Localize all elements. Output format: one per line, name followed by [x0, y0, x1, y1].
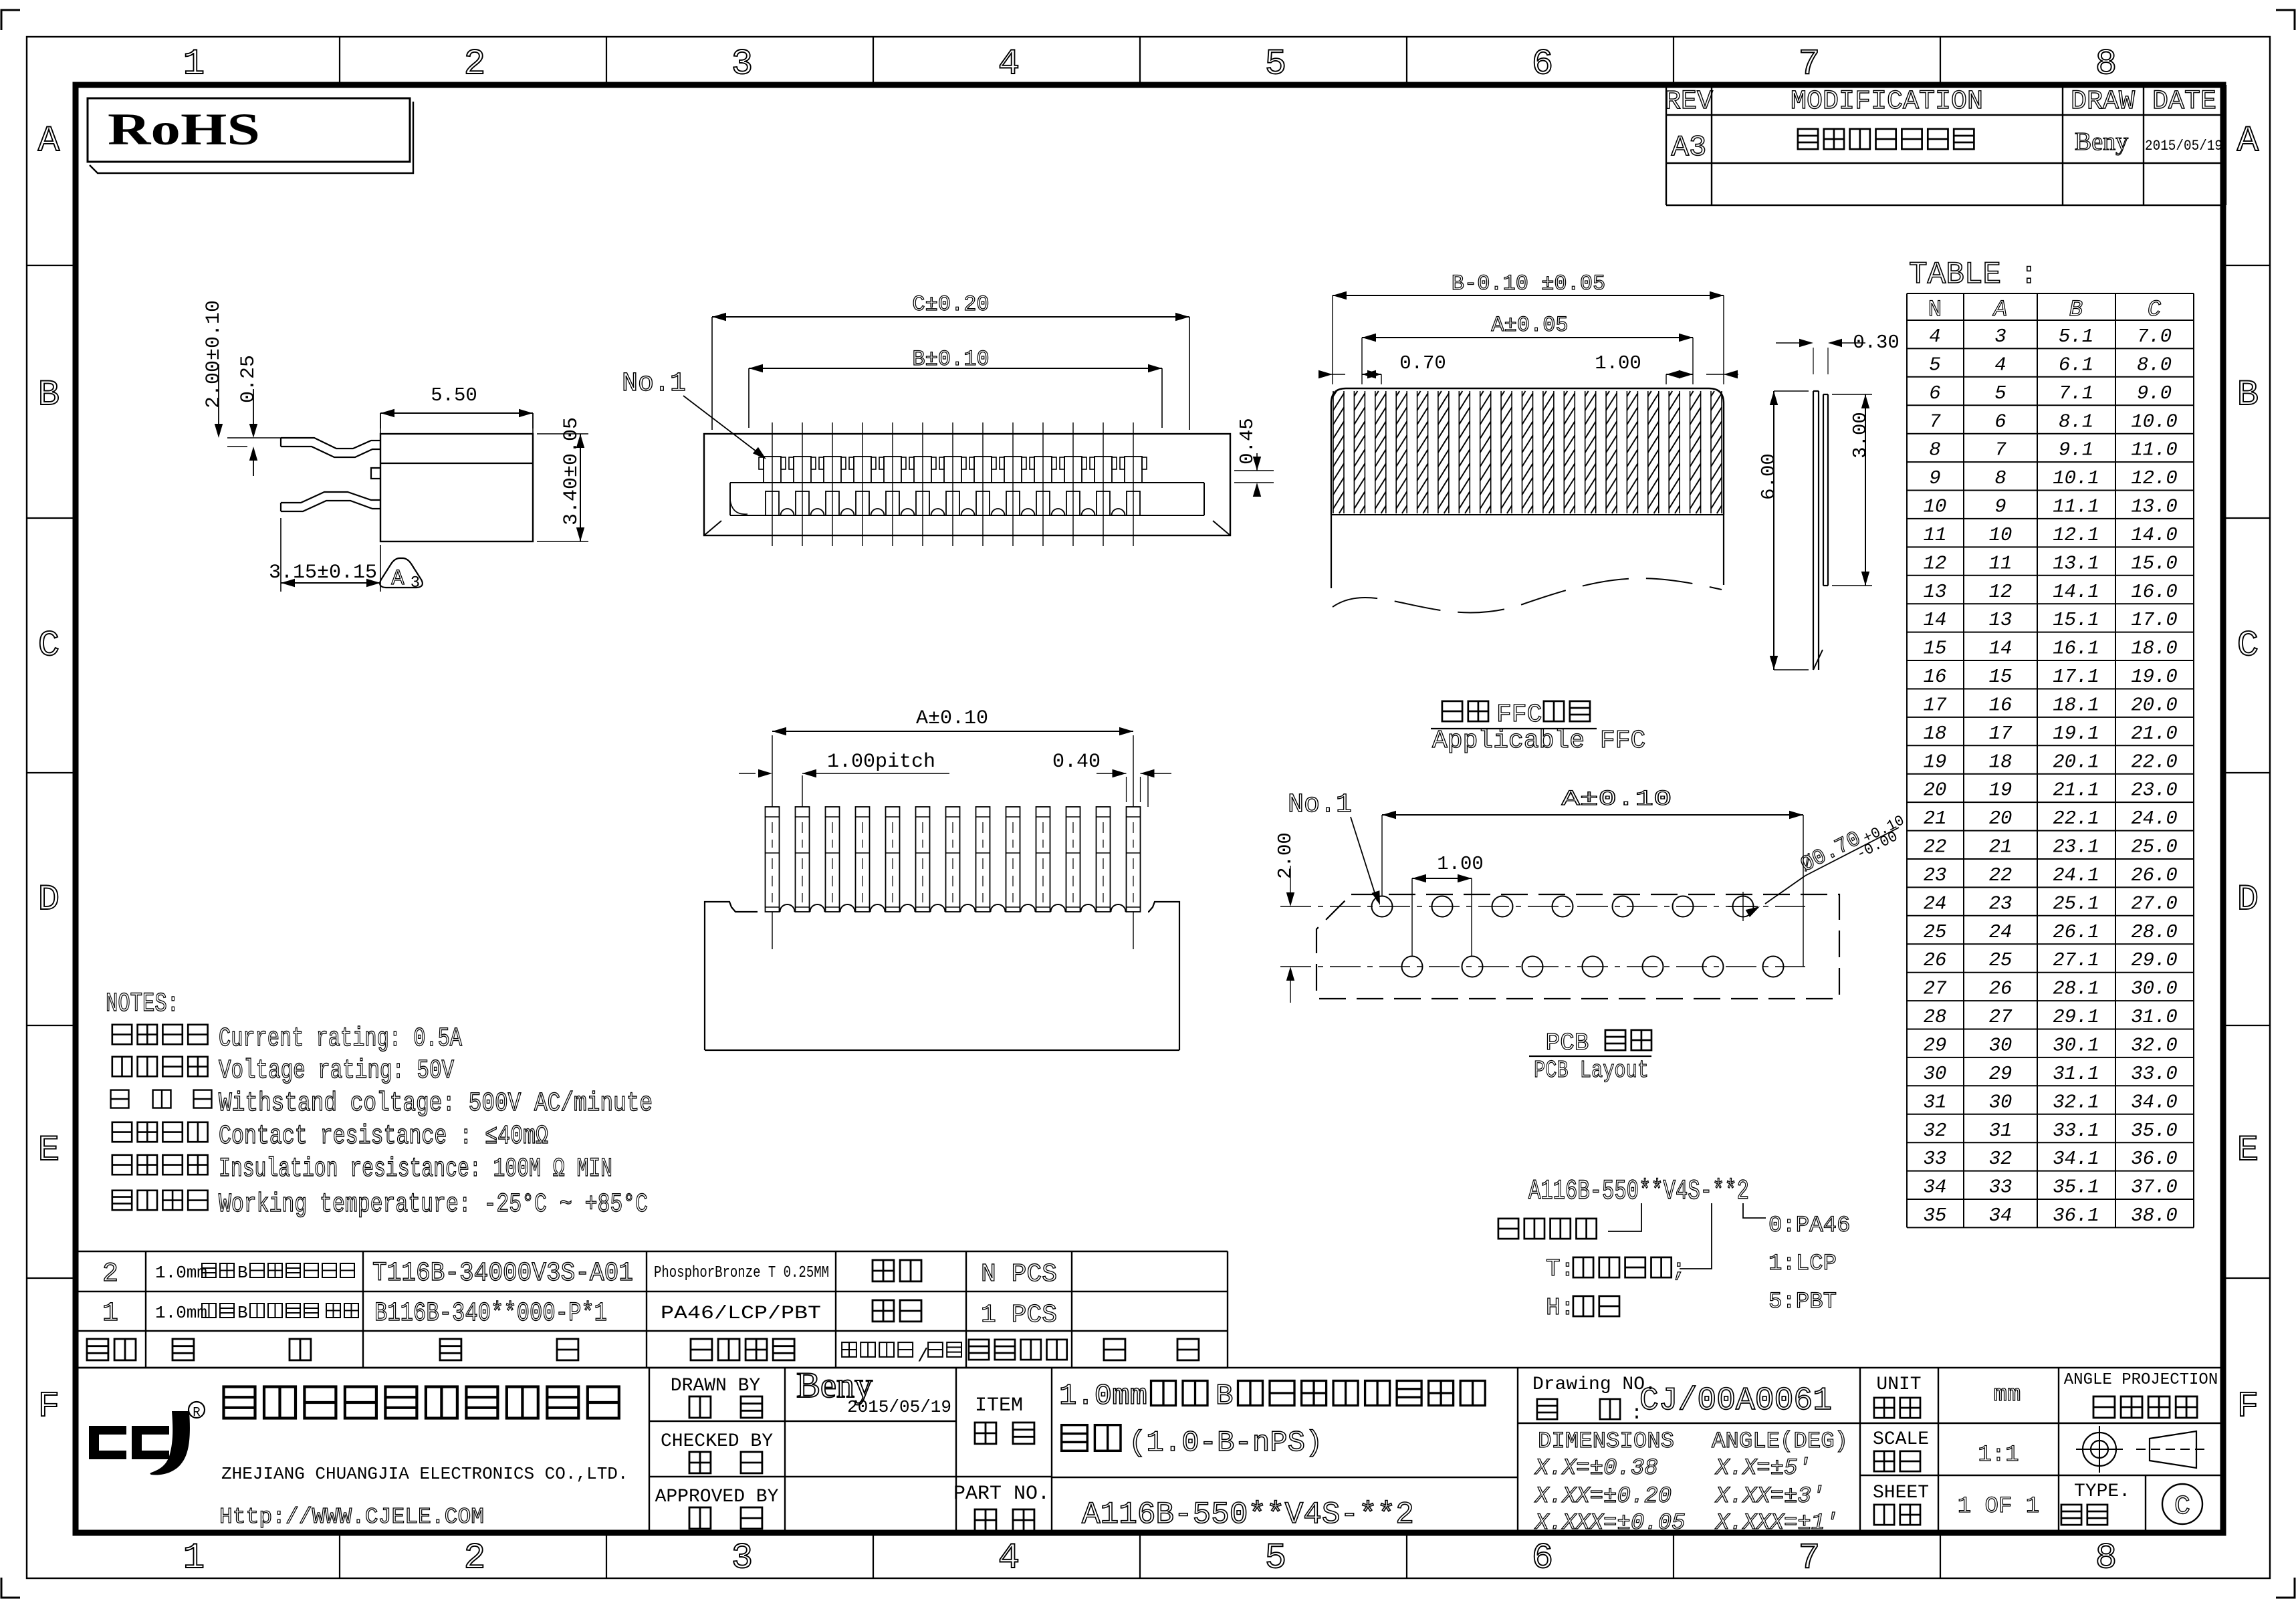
svg-text:1.00: 1.00 — [1437, 853, 1484, 875]
svg-text:5:PBT: 5:PBT — [1768, 1289, 1837, 1315]
svg-text:PA46/LCP/PBT: PA46/LCP/PBT — [661, 1304, 821, 1324]
svg-text:24: 24 — [1924, 892, 1947, 914]
svg-text:MODIFICATION: MODIFICATION — [1791, 87, 1983, 117]
svg-text:33.1: 33.1 — [2053, 1120, 2099, 1142]
svg-text:B: B — [237, 1263, 248, 1283]
svg-text:9.1: 9.1 — [2059, 439, 2093, 461]
svg-text:16.0: 16.0 — [2131, 581, 2178, 603]
svg-text:PART NO.: PART NO. — [953, 1483, 1050, 1505]
svg-text:4: 4 — [998, 1538, 1020, 1579]
svg-text:3: 3 — [1994, 326, 2006, 348]
svg-text:A±0.10: A±0.10 — [1562, 787, 1672, 812]
svg-text:29: 29 — [1989, 1063, 2013, 1085]
svg-text:1: 1 — [183, 1538, 205, 1579]
svg-text:Current rating: 0.5A: Current rating: 0.5A — [219, 1024, 462, 1054]
svg-text:F: F — [38, 1386, 60, 1427]
svg-text:X.XX=±3': X.XX=±3' — [1714, 1484, 1825, 1509]
svg-text:DRAW: DRAW — [2071, 87, 2135, 117]
svg-text:7.0: 7.0 — [2137, 326, 2172, 348]
svg-text:ANGLE(DEG): ANGLE(DEG) — [1712, 1429, 1848, 1455]
svg-text:A±0.10: A±0.10 — [916, 707, 988, 730]
svg-text:2.00±0.10: 2.00±0.10 — [203, 300, 225, 408]
svg-text:27.0: 27.0 — [2131, 892, 2178, 914]
svg-text:27: 27 — [1924, 978, 1947, 1000]
svg-text:22: 22 — [1924, 836, 1947, 858]
svg-text:X.XX=±0.20: X.XX=±0.20 — [1534, 1484, 1672, 1509]
svg-text:28: 28 — [1924, 1006, 1947, 1028]
svg-text:C: C — [38, 626, 60, 666]
svg-text:13.0: 13.0 — [2131, 496, 2178, 518]
svg-text:24: 24 — [1989, 921, 2013, 943]
svg-text:18: 18 — [1989, 751, 2013, 773]
svg-text:Ø0.70: Ø0.70 — [1797, 826, 1865, 878]
svg-text:4: 4 — [998, 44, 1020, 85]
svg-text:C: C — [2148, 297, 2162, 323]
svg-text:12: 12 — [1924, 552, 1947, 574]
svg-text:2.00: 2.00 — [1274, 832, 1296, 879]
svg-text:21: 21 — [1989, 836, 2013, 858]
svg-text:14: 14 — [1924, 609, 1947, 631]
svg-text:33: 33 — [1989, 1177, 2013, 1199]
svg-text:8.0: 8.0 — [2137, 354, 2172, 376]
svg-text:17: 17 — [1924, 695, 1947, 717]
svg-text:A±0.05: A±0.05 — [1491, 313, 1568, 338]
svg-text:7: 7 — [1929, 410, 1941, 432]
svg-text:Working temperature: -25°C ~ +: Working temperature: -25°C ~ +85°C — [219, 1190, 648, 1220]
svg-text:31: 31 — [1989, 1120, 2013, 1142]
svg-text:34.1: 34.1 — [2053, 1148, 2099, 1170]
svg-text:3.15±0.15: 3.15±0.15 — [269, 562, 377, 584]
svg-text:4: 4 — [1994, 354, 2006, 376]
svg-text:25.1: 25.1 — [2053, 892, 2099, 914]
svg-text:5: 5 — [1929, 354, 1940, 376]
svg-text:REV: REV — [1665, 87, 1713, 117]
svg-text:1.0mm: 1.0mm — [155, 1303, 207, 1323]
svg-text:DATE: DATE — [2152, 87, 2216, 117]
svg-text:E: E — [2237, 1130, 2259, 1171]
svg-text:A: A — [391, 566, 405, 591]
svg-text:12: 12 — [1989, 581, 2013, 603]
svg-text:32: 32 — [1989, 1148, 2013, 1170]
svg-text:30: 30 — [1989, 1035, 2013, 1057]
svg-text:35.1: 35.1 — [2053, 1177, 2099, 1199]
svg-text:9.0: 9.0 — [2137, 382, 2172, 404]
svg-text:37.0: 37.0 — [2131, 1177, 2178, 1199]
svg-text:C: C — [2174, 1492, 2190, 1522]
svg-text:mm: mm — [1994, 1382, 2021, 1408]
svg-text:26.1: 26.1 — [2053, 921, 2099, 943]
svg-text:33: 33 — [1924, 1148, 1947, 1170]
svg-text:10: 10 — [1924, 496, 1947, 518]
svg-text:15: 15 — [1989, 666, 2013, 688]
svg-text:(1.0-B-nPS): (1.0-B-nPS) — [1129, 1427, 1323, 1460]
svg-text:30.1: 30.1 — [2053, 1035, 2099, 1057]
svg-text:28.1: 28.1 — [2053, 978, 2099, 1000]
svg-text:18.0: 18.0 — [2131, 638, 2178, 660]
svg-text:34: 34 — [1924, 1177, 1947, 1199]
svg-text:6: 6 — [1994, 410, 2006, 432]
svg-text:8: 8 — [1994, 467, 2006, 489]
svg-text:12.1: 12.1 — [2053, 524, 2099, 546]
svg-text:34: 34 — [1989, 1205, 2013, 1227]
svg-text:16.1: 16.1 — [2053, 638, 2099, 660]
svg-text:1: 1 — [183, 44, 205, 85]
svg-text:CHECKED BY: CHECKED BY — [661, 1431, 773, 1452]
svg-text:1:1: 1:1 — [1978, 1443, 2019, 1468]
svg-text:N PCS: N PCS — [981, 1260, 1057, 1289]
svg-text:32.0: 32.0 — [2131, 1035, 2178, 1057]
svg-text:4: 4 — [1929, 326, 1940, 348]
svg-text:15: 15 — [1924, 638, 1947, 660]
svg-text:7: 7 — [1799, 1538, 1820, 1579]
svg-text:2: 2 — [464, 44, 485, 85]
svg-text:3: 3 — [411, 574, 420, 592]
svg-text:25: 25 — [1924, 921, 1947, 943]
svg-text:20.1: 20.1 — [2053, 751, 2099, 773]
svg-text:3: 3 — [731, 44, 753, 85]
svg-text:UNIT: UNIT — [1876, 1374, 1921, 1395]
svg-text:10.0: 10.0 — [2131, 410, 2178, 432]
svg-text:16: 16 — [1924, 666, 1947, 688]
svg-text:8.1: 8.1 — [2059, 410, 2093, 432]
svg-text:NOTES:: NOTES: — [106, 989, 179, 1019]
svg-text:1 OF 1: 1 OF 1 — [1958, 1494, 2039, 1519]
svg-text:1: 1 — [102, 1299, 118, 1329]
svg-text:21.1: 21.1 — [2053, 779, 2099, 801]
svg-text:FFC: FFC — [1496, 701, 1542, 729]
svg-text:N: N — [1928, 297, 1942, 323]
svg-text:30: 30 — [1924, 1063, 1947, 1085]
svg-text:Voltage rating: 50V: Voltage rating: 50V — [219, 1056, 454, 1086]
svg-text:29: 29 — [1924, 1035, 1947, 1057]
svg-text:16: 16 — [1989, 695, 2013, 717]
svg-text:Drawing NO.: Drawing NO. — [1532, 1374, 1656, 1395]
svg-text:29.0: 29.0 — [2131, 949, 2178, 971]
svg-text:R: R — [193, 1405, 200, 1420]
svg-text:A3: A3 — [1672, 131, 1707, 164]
svg-text:8: 8 — [2095, 44, 2117, 85]
svg-text:5: 5 — [1265, 44, 1286, 85]
svg-text:X.XXX=±1': X.XXX=±1' — [1714, 1511, 1839, 1536]
svg-text:6.00: 6.00 — [1758, 453, 1780, 500]
svg-text:B: B — [38, 375, 60, 416]
svg-text:19: 19 — [1989, 779, 2013, 801]
svg-text:APPROVED BY: APPROVED BY — [655, 1487, 779, 1507]
svg-text:TYPE.: TYPE. — [2074, 1481, 2130, 1502]
svg-text:31.0: 31.0 — [2131, 1006, 2178, 1028]
svg-text:19: 19 — [1924, 751, 1947, 773]
svg-text:26: 26 — [1924, 949, 1947, 971]
svg-text:D: D — [2237, 880, 2259, 920]
svg-text:C±0.20: C±0.20 — [912, 292, 989, 317]
svg-text:18.1: 18.1 — [2053, 695, 2099, 717]
svg-text:17.0: 17.0 — [2131, 609, 2178, 631]
svg-text:20.0: 20.0 — [2131, 695, 2178, 717]
svg-text:0:PA46: 0:PA46 — [1768, 1213, 1850, 1239]
svg-text:3: 3 — [731, 1538, 753, 1579]
svg-text:A: A — [1992, 297, 2007, 323]
svg-text:21: 21 — [1924, 808, 1947, 830]
svg-text:B: B — [2237, 375, 2259, 416]
svg-text:17.1: 17.1 — [2053, 666, 2099, 688]
svg-text:34.0: 34.0 — [2131, 1091, 2178, 1113]
svg-text:X.X=±5': X.X=±5' — [1714, 1456, 1811, 1481]
svg-text:6: 6 — [1532, 44, 1553, 85]
svg-text:8: 8 — [2095, 1538, 2117, 1579]
svg-text:11: 11 — [1924, 524, 1947, 546]
svg-text:2: 2 — [102, 1259, 118, 1289]
svg-text:38.0: 38.0 — [2131, 1205, 2178, 1227]
svg-text:36.1: 36.1 — [2053, 1205, 2099, 1227]
svg-text:Insulation resistance: 100M Ω: Insulation resistance: 100M Ω MIN — [219, 1154, 612, 1185]
svg-text:32.1: 32.1 — [2053, 1091, 2099, 1113]
svg-text:X.XXX=±0.05: X.XXX=±0.05 — [1534, 1511, 1685, 1536]
svg-text:SHEET: SHEET — [1873, 1483, 1929, 1503]
svg-text:D: D — [38, 880, 60, 920]
svg-text:No.1: No.1 — [1288, 790, 1352, 820]
svg-text:E: E — [38, 1130, 60, 1171]
svg-text:5: 5 — [1994, 382, 2006, 404]
svg-text:26: 26 — [1989, 978, 2013, 1000]
svg-text:23: 23 — [1989, 892, 2013, 914]
svg-text:Applicable FFC: Applicable FFC — [1432, 727, 1645, 755]
svg-text:11.1: 11.1 — [2053, 496, 2099, 518]
svg-text:PhosphorBronze T 0.25MM: PhosphorBronze T 0.25MM — [654, 1264, 829, 1282]
svg-text:0.40: 0.40 — [1052, 751, 1101, 773]
svg-text:6: 6 — [1532, 1538, 1553, 1579]
svg-text:PCB: PCB — [1546, 1029, 1589, 1057]
svg-text:A116B-550**V4S-**2: A116B-550**V4S-**2 — [1082, 1497, 1414, 1532]
svg-text:A116B-550**V4S-**2: A116B-550**V4S-**2 — [1528, 1175, 1749, 1207]
svg-text:ANGLE PROJECTION: ANGLE PROJECTION — [2064, 1371, 2218, 1389]
svg-text:23.0: 23.0 — [2131, 779, 2178, 801]
svg-text:8: 8 — [1929, 439, 1940, 461]
svg-text:ZHEJIANG CHUANGJIA ELECTRONICS: ZHEJIANG CHUANGJIA ELECTRONICS CO.,LTD. — [221, 1464, 628, 1484]
svg-text:B: B — [2069, 297, 2083, 323]
svg-text:Withstand coltage: 500V AC/min: Withstand coltage: 500V AC/minute — [219, 1089, 653, 1119]
svg-text:14: 14 — [1989, 638, 2013, 660]
svg-text:B116B-340**000-P*1: B116B-340**000-P*1 — [374, 1299, 607, 1329]
svg-text:25.0: 25.0 — [2131, 836, 2178, 858]
svg-text:13: 13 — [1989, 609, 2013, 631]
svg-text:F: F — [2237, 1386, 2259, 1427]
svg-text:26.0: 26.0 — [2131, 864, 2178, 886]
svg-text:B: B — [1216, 1380, 1233, 1413]
svg-text:TABLE :: TABLE : — [1909, 257, 2038, 292]
svg-text:2015/05/19: 2015/05/19 — [847, 1397, 951, 1417]
svg-text:Contact resistance : ≤40mΩ: Contact resistance : ≤40mΩ — [219, 1122, 548, 1152]
svg-text:15.1: 15.1 — [2053, 609, 2099, 631]
svg-text:1.00: 1.00 — [1595, 352, 1641, 374]
svg-text:17: 17 — [1989, 723, 2013, 745]
svg-text:35.0: 35.0 — [2131, 1120, 2178, 1142]
svg-text:22.0: 22.0 — [2131, 751, 2178, 773]
svg-text:CJ/00A0061: CJ/00A0061 — [1639, 1383, 1832, 1419]
svg-text:7: 7 — [1799, 44, 1820, 85]
svg-text:23.1: 23.1 — [2053, 836, 2099, 858]
svg-text:23: 23 — [1924, 864, 1947, 886]
svg-text:27.1: 27.1 — [2053, 949, 2099, 971]
svg-text:2: 2 — [464, 1538, 485, 1579]
svg-text:PCB Layout: PCB Layout — [1534, 1057, 1649, 1084]
svg-text:1 PCS: 1 PCS — [981, 1301, 1057, 1330]
svg-text:/: / — [917, 1346, 929, 1367]
svg-text:12.0: 12.0 — [2131, 467, 2178, 489]
svg-text:24.1: 24.1 — [2053, 864, 2099, 886]
svg-text:19.1: 19.1 — [2053, 723, 2099, 745]
svg-text:30.0: 30.0 — [2131, 978, 2178, 1000]
svg-text:X.X=±0.38: X.X=±0.38 — [1534, 1456, 1658, 1481]
svg-text:10.1: 10.1 — [2053, 467, 2099, 489]
svg-text:11: 11 — [1989, 552, 2013, 574]
svg-text:19.0: 19.0 — [2131, 666, 2178, 688]
svg-text:9: 9 — [1929, 467, 1940, 489]
svg-text:20: 20 — [1989, 808, 2013, 830]
svg-text:20: 20 — [1924, 779, 1947, 801]
svg-text:27: 27 — [1989, 1006, 2013, 1028]
svg-text:1.0mm: 1.0mm — [155, 1263, 207, 1283]
svg-text:Http://WWW.CJELE.COM: Http://WWW.CJELE.COM — [219, 1505, 484, 1529]
svg-text:B-0.10 ±0.05: B-0.10 ±0.05 — [1452, 271, 1605, 296]
svg-text:C: C — [2237, 626, 2259, 666]
svg-text:Beny: Beny — [2075, 128, 2128, 156]
svg-text:22: 22 — [1989, 864, 2013, 886]
svg-text:28.0: 28.0 — [2131, 921, 2178, 943]
svg-text:11.0: 11.0 — [2131, 439, 2178, 461]
svg-text:DIMENSIONS: DIMENSIONS — [1538, 1429, 1674, 1455]
svg-text:22.1: 22.1 — [2053, 808, 2099, 830]
svg-text:6: 6 — [1929, 382, 1940, 404]
svg-text:31: 31 — [1924, 1091, 1947, 1113]
svg-text:;: ; — [1672, 1255, 1686, 1283]
svg-text:9: 9 — [1994, 496, 2006, 518]
svg-text:5: 5 — [1265, 1538, 1286, 1579]
svg-text:30: 30 — [1989, 1091, 2013, 1113]
svg-text:10: 10 — [1989, 524, 2013, 546]
svg-text:5.50: 5.50 — [431, 384, 477, 406]
svg-text:15.0: 15.0 — [2131, 552, 2178, 574]
svg-text:14.0: 14.0 — [2131, 524, 2178, 546]
svg-text:7.1: 7.1 — [2059, 382, 2093, 404]
svg-text:B: B — [237, 1303, 248, 1323]
svg-text:A: A — [38, 121, 60, 162]
svg-text:T116B-34000V3S-A01: T116B-34000V3S-A01 — [372, 1259, 633, 1289]
svg-text:6.1: 6.1 — [2059, 354, 2093, 376]
svg-text:18: 18 — [1924, 723, 1947, 745]
svg-text:32: 32 — [1924, 1120, 1947, 1142]
svg-text:2015/05/19: 2015/05/19 — [2145, 138, 2222, 154]
svg-text:5.1: 5.1 — [2059, 326, 2093, 348]
svg-text:ITEM: ITEM — [975, 1394, 1023, 1417]
svg-text:RoHS: RoHS — [108, 104, 260, 154]
svg-text:14.1: 14.1 — [2053, 581, 2099, 603]
svg-text:25: 25 — [1989, 949, 2013, 971]
svg-text:DRAWN BY: DRAWN BY — [671, 1376, 761, 1396]
svg-text:13.1: 13.1 — [2053, 552, 2099, 574]
svg-text:No.1: No.1 — [622, 369, 686, 399]
svg-text:1:LCP: 1:LCP — [1768, 1251, 1837, 1277]
svg-text:3.00: 3.00 — [1849, 412, 1871, 459]
svg-text:13: 13 — [1924, 581, 1947, 603]
svg-text:1.0mm: 1.0mm — [1059, 1380, 1147, 1413]
svg-text:7: 7 — [1994, 439, 2006, 461]
svg-text:SCALE: SCALE — [1873, 1429, 1929, 1450]
svg-text:29.1: 29.1 — [2053, 1006, 2099, 1028]
svg-text:T:: T: — [1546, 1255, 1575, 1283]
svg-text:33.0: 33.0 — [2131, 1063, 2178, 1085]
svg-text:H:: H: — [1546, 1294, 1575, 1322]
svg-text:36.0: 36.0 — [2131, 1148, 2178, 1170]
svg-text:35: 35 — [1924, 1205, 1947, 1227]
svg-text:0.25: 0.25 — [237, 355, 260, 403]
svg-text:0.70: 0.70 — [1399, 352, 1446, 374]
svg-text:24.0: 24.0 — [2131, 808, 2178, 830]
svg-text:31.1: 31.1 — [2053, 1063, 2099, 1085]
svg-text:1.00pitch: 1.00pitch — [827, 751, 935, 773]
svg-text:A: A — [2237, 121, 2259, 162]
svg-text:21.0: 21.0 — [2131, 723, 2178, 745]
